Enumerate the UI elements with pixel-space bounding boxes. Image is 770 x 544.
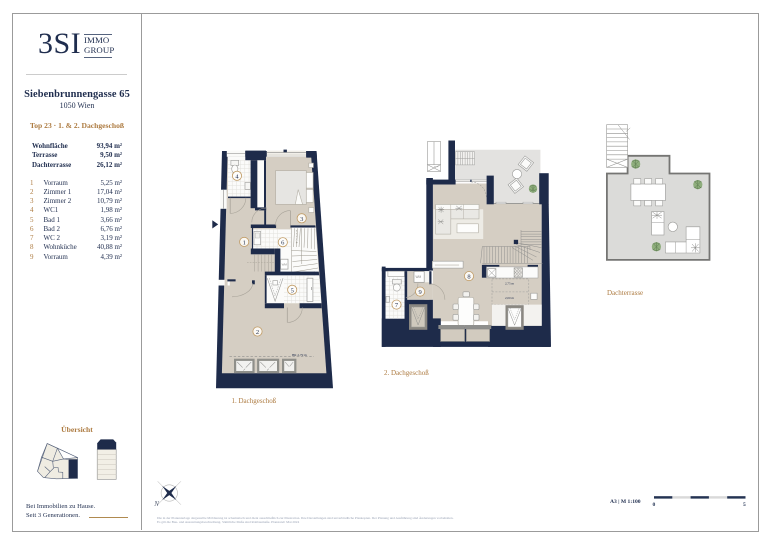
- svg-text:0: 0: [653, 502, 656, 508]
- svg-text:5: 5: [291, 287, 294, 294]
- svg-text:WM: WM: [416, 275, 422, 279]
- svg-text:3: 3: [300, 216, 303, 223]
- svg-text:WM: WM: [282, 263, 288, 267]
- svg-text:9: 9: [418, 289, 421, 296]
- svg-text:8: 8: [467, 274, 470, 281]
- svg-text:N: N: [153, 500, 159, 508]
- svg-text:5: 5: [743, 502, 746, 508]
- svg-text:1: 1: [243, 239, 246, 246]
- svg-text:2: 2: [256, 329, 259, 336]
